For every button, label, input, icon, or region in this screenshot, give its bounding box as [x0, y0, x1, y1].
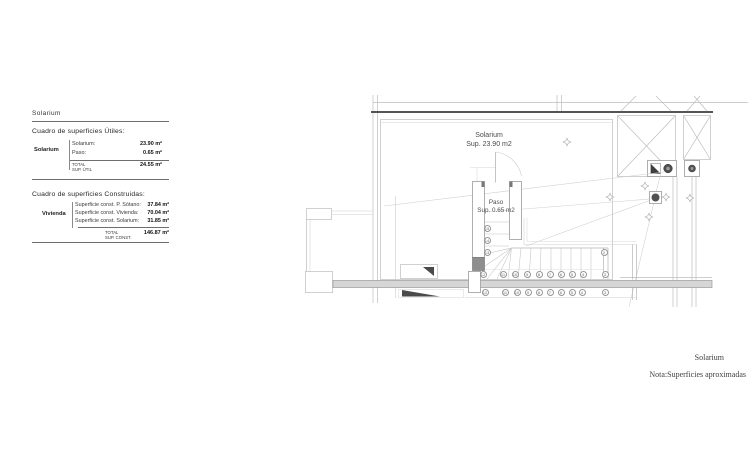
- total-value: 24.55 m²: [140, 162, 162, 168]
- divider: [72, 202, 73, 228]
- row-value: 31.85 m²: [142, 218, 169, 224]
- total-sublabel: SUP. CONST.: [105, 235, 131, 240]
- stair-step-number: 9: [525, 289, 532, 296]
- stair-step-number: 5: [569, 289, 576, 296]
- room-area: Sup. 23.90 m2: [447, 141, 531, 150]
- stair-step-number: 3: [602, 289, 609, 296]
- table-row: Superficie const. Vivienda: 70.04 m²: [75, 210, 169, 216]
- stair-step-number: 2: [601, 249, 608, 256]
- stair-step-number: 4: [579, 289, 586, 296]
- stair-step-number: 12: [482, 289, 489, 296]
- row-label: Superficie const. P. Sótano:: [75, 202, 141, 208]
- utiles-group-label: Solarium: [34, 147, 59, 153]
- total-row: TOTAL SUP. ÚTIL 24.55 m²: [72, 162, 162, 172]
- construidas-group-label: Vivienda: [42, 211, 66, 217]
- slope-arrow-icon: [645, 213, 653, 221]
- stair-step-number: 3: [602, 271, 609, 278]
- row-value: 0.65 m²: [143, 150, 162, 156]
- stair-step-number: 9: [524, 271, 531, 278]
- stair-step-number: 6: [558, 289, 565, 296]
- stair-step-number: 5: [569, 271, 576, 278]
- stair-step-number: 14: [484, 237, 491, 244]
- stair-step-number: 12: [480, 271, 487, 278]
- stair-step-number: 7: [547, 271, 554, 278]
- slope-arrow-icon: [662, 193, 670, 201]
- table-row: Superficie const. Solarium: 31.85 m²: [75, 218, 169, 224]
- total-sublabel: SUP. ÚTIL: [72, 167, 92, 172]
- table-row: Solarium: 23.90 m²: [72, 141, 162, 147]
- section-cut-band: [333, 281, 712, 288]
- stair-step-number: 4: [580, 271, 587, 278]
- divider: [32, 121, 169, 122]
- room-name: Paso: [461, 199, 531, 207]
- stair-step-number: 10: [512, 271, 519, 278]
- stair-step-number: 10: [514, 289, 521, 296]
- panel-title: Solarium: [32, 110, 61, 117]
- stair-step-number: 11: [502, 289, 509, 296]
- table-row: Paso: 0.65 m²: [72, 150, 162, 156]
- total-row: TOTAL SUP. CONST. 146.87 m²: [75, 230, 169, 240]
- table-row: Superficie const. P. Sótano: 37.84 m²: [75, 202, 169, 208]
- ceiling-light-fixtures: [648, 161, 700, 177]
- stair-step-number: 8: [536, 271, 543, 278]
- stair-column: [469, 272, 481, 293]
- divider: [32, 179, 169, 180]
- row-value: 23.90 m²: [140, 141, 162, 147]
- sheet-title: Solarium: [695, 353, 724, 362]
- stair-step-number: 11: [500, 271, 507, 278]
- row-label: Superficie const. Solarium:: [75, 218, 139, 224]
- sheet-note: Nota:Superficies aproximadas: [649, 370, 746, 379]
- divider: [70, 160, 169, 161]
- utiles-heading: Cuadro de superficies Útiles:: [32, 128, 125, 135]
- stair-step-number: 8: [536, 289, 543, 296]
- row-label: Paso:: [72, 150, 86, 156]
- stair-step-number: 15: [484, 225, 491, 232]
- construidas-heading: Cuadro de superficies Construidas:: [32, 191, 145, 198]
- stair-step-number: 6: [558, 271, 565, 278]
- row-label: Superficie const. Vivienda:: [75, 210, 138, 216]
- room-area: Sup. 0.65 m2: [461, 207, 531, 215]
- slope-arrow-icon: [641, 182, 649, 190]
- door-jamb: [510, 182, 513, 188]
- row-value: 70.04 m²: [141, 210, 169, 216]
- drain-square-icon: [650, 192, 662, 204]
- total-value: 146.87 m²: [144, 230, 169, 236]
- divider: [32, 242, 169, 243]
- door-jamb: [482, 182, 485, 188]
- divider: [69, 140, 70, 170]
- room-name: Solarium: [447, 132, 531, 141]
- solarium-room-label: Solarium Sup. 23.90 m2: [447, 132, 531, 149]
- stair-step-number: 13: [484, 249, 491, 256]
- surface-tables-panel: Solarium Cuadro de superficies Útiles: S…: [32, 108, 169, 248]
- divider: [78, 227, 169, 228]
- door-swing-arc: [496, 152, 522, 176]
- row-value: 37.84 m²: [144, 202, 169, 208]
- row-label: Solarium:: [72, 141, 95, 147]
- slope-arrow-icon: [563, 138, 571, 146]
- paso-room-label: Paso Sup. 0.65 m2: [461, 199, 531, 215]
- slope-arrow-icon: [686, 194, 694, 202]
- stair-step-number: 7: [547, 289, 554, 296]
